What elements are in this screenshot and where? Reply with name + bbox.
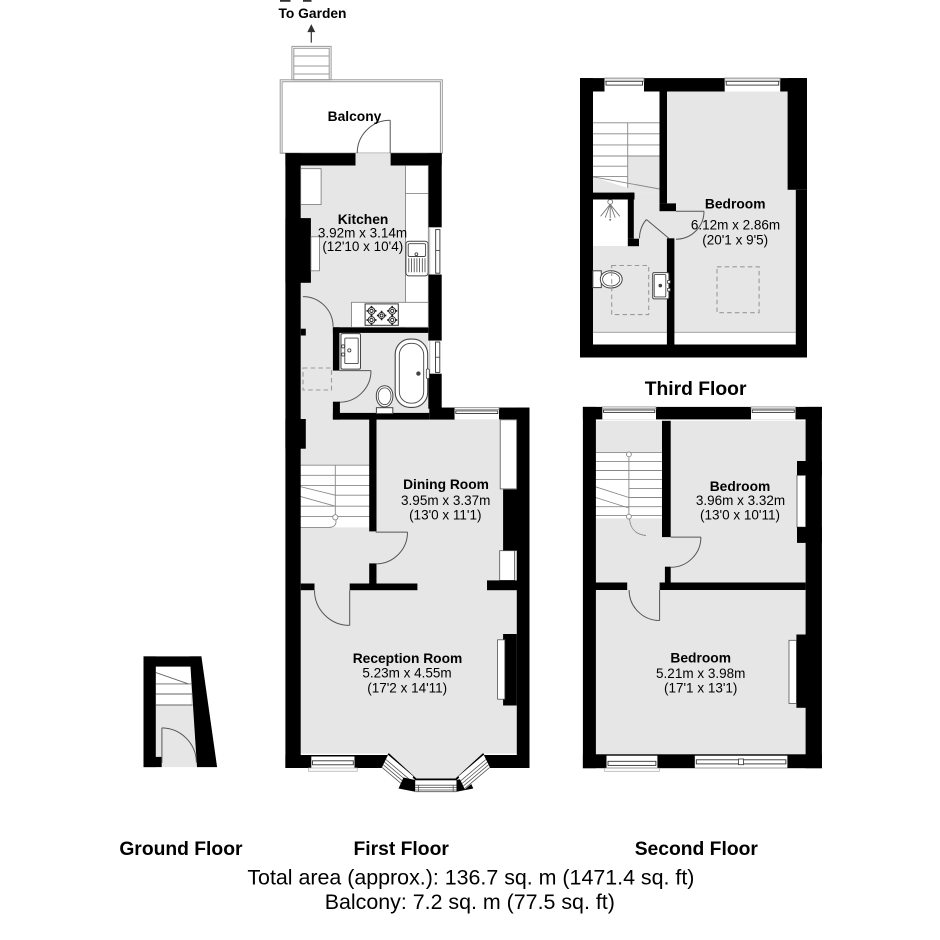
svg-text:Total area (approx.): 136.7 sq: Total area (approx.): 136.7 sq. m (1471.… xyxy=(247,865,694,889)
svg-text:Bedroom: Bedroom xyxy=(705,196,766,211)
svg-text:3.95m x 3.37m: 3.95m x 3.37m xyxy=(401,493,490,508)
svg-text:Bedroom: Bedroom xyxy=(670,650,731,665)
svg-text:(13'0 x 11'1): (13'0 x 11'1) xyxy=(409,508,481,523)
svg-text:Balcony: 7.2 sq. m (77.5 sq. f: Balcony: 7.2 sq. m (77.5 sq. ft) xyxy=(325,890,615,914)
svg-text:Third Floor: Third Floor xyxy=(645,379,747,400)
svg-text:(17'2 x 14'11): (17'2 x 14'11) xyxy=(367,680,447,695)
svg-text:6.12m x 2.86m: 6.12m x 2.86m xyxy=(691,218,780,233)
svg-text:(17'1 x 13'1): (17'1 x 13'1) xyxy=(664,681,737,696)
svg-text:Reception Room: Reception Room xyxy=(353,651,463,666)
svg-text:Kitchen: Kitchen xyxy=(338,212,389,227)
svg-text:(13'0 x 10'11): (13'0 x 10'11) xyxy=(700,508,780,523)
svg-text:First Floor: First Floor xyxy=(354,839,450,860)
svg-text:Second Floor: Second Floor xyxy=(635,839,759,860)
svg-text:To Garden: To Garden xyxy=(279,6,347,21)
svg-text:Dining Room: Dining Room xyxy=(403,477,489,492)
svg-text:Balcony: Balcony xyxy=(328,109,382,124)
svg-text:(20'1 x 9'5): (20'1 x 9'5) xyxy=(702,233,768,248)
svg-text:Ground Floor: Ground Floor xyxy=(119,839,243,860)
svg-text:(12'10 x 10'4): (12'10 x 10'4) xyxy=(322,239,403,254)
svg-text:5.21m x 3.98m: 5.21m x 3.98m xyxy=(656,666,745,681)
svg-text:Bedroom: Bedroom xyxy=(710,479,771,494)
svg-text:3.96m x 3.32m: 3.96m x 3.32m xyxy=(696,493,785,508)
svg-text:5.23m x 4.55m: 5.23m x 4.55m xyxy=(362,665,451,680)
